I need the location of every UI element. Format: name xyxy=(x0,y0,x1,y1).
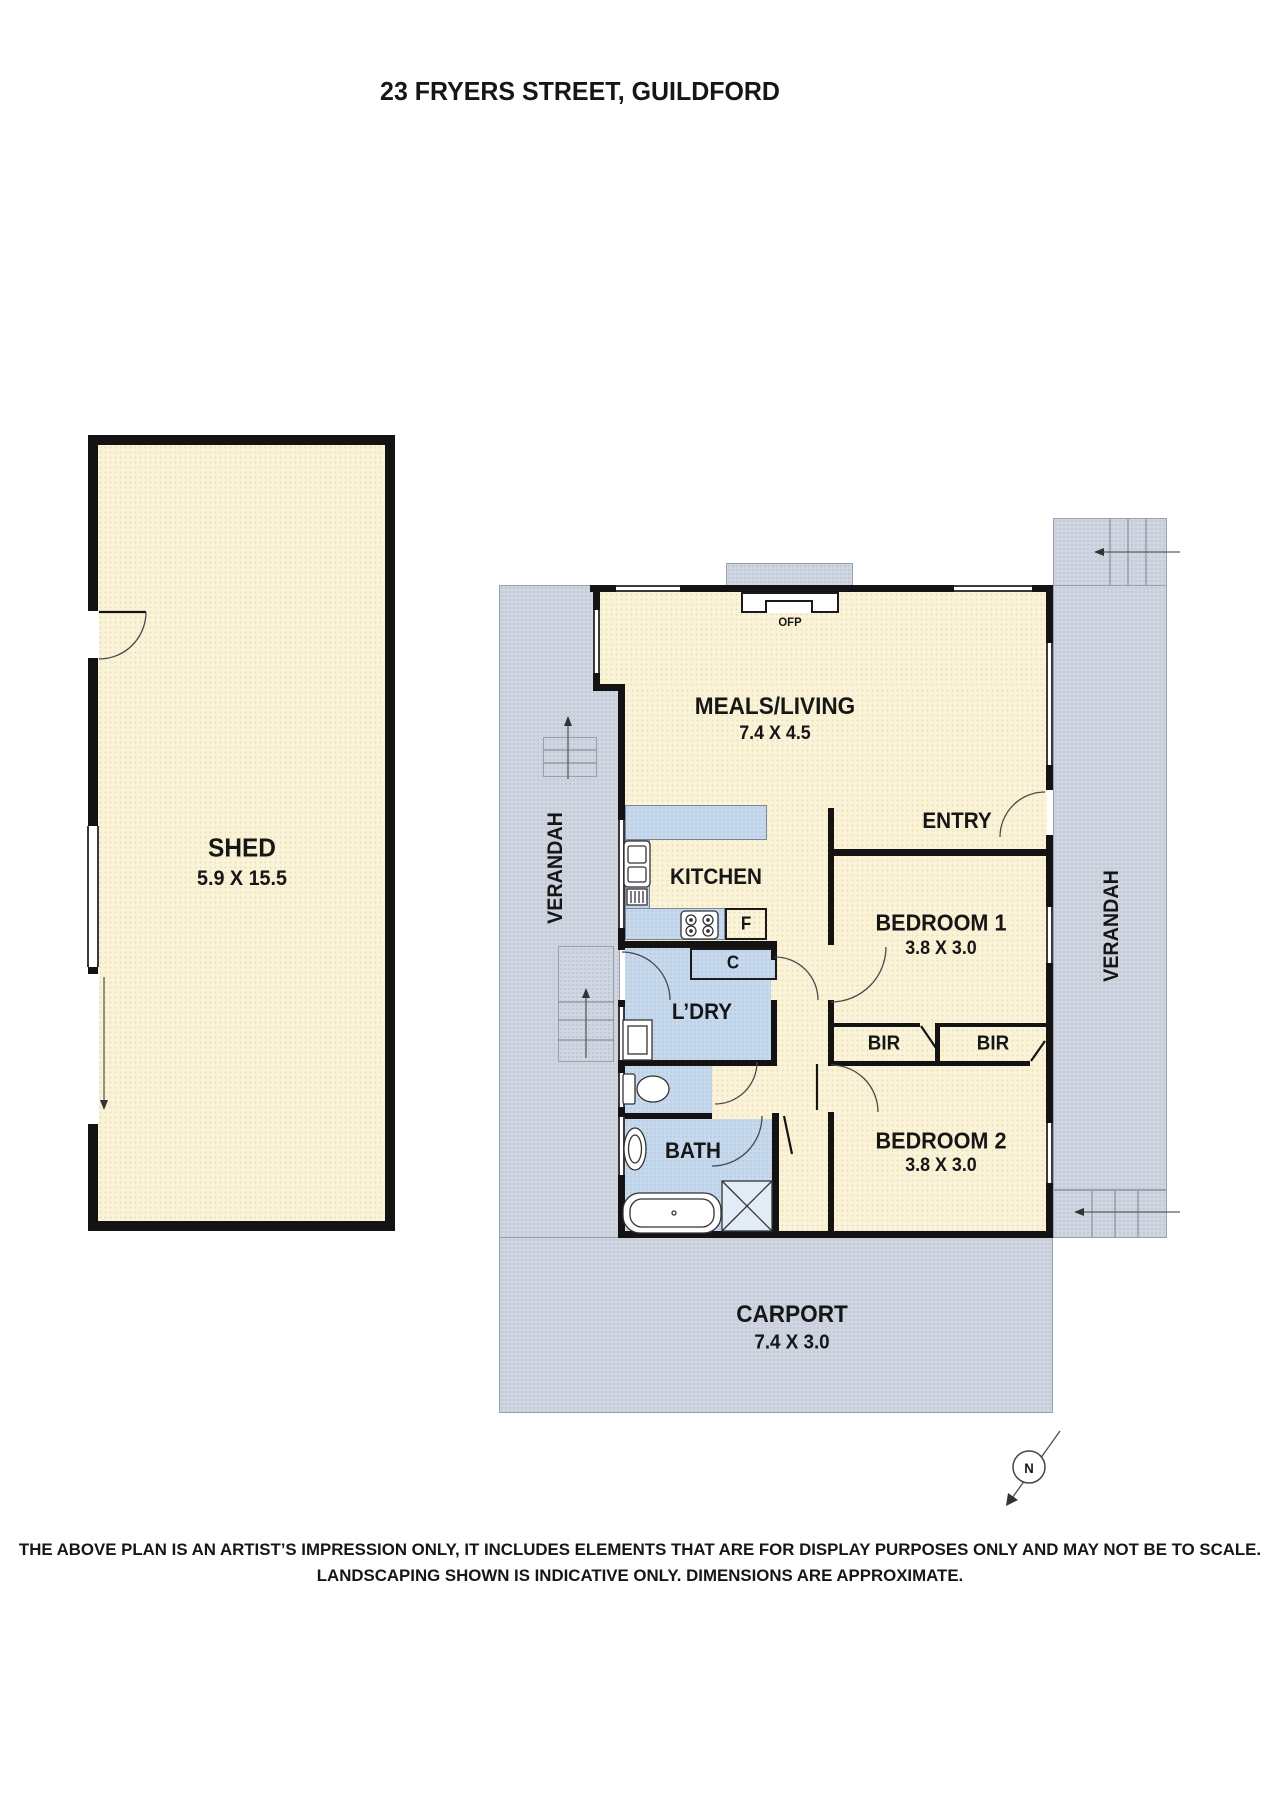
meals-living-label: MEALS/LIVING xyxy=(695,693,855,721)
bedroom2-label: BEDROOM 2 xyxy=(876,1128,1007,1155)
entry-door-arc xyxy=(1000,792,1045,837)
verandah-right-label: VERANDAH xyxy=(1100,870,1124,982)
bir-left-label: BIR xyxy=(868,1033,900,1056)
vanity-basin xyxy=(624,1128,646,1170)
compass-arrow xyxy=(1006,1493,1018,1506)
shed-dims: 5.9 X 15.5 xyxy=(197,867,287,891)
bir-left-door-tick xyxy=(921,1026,936,1048)
bedroom1-door-arc xyxy=(831,947,886,1002)
disclaimer: THE ABOVE PLAN IS AN ARTIST’S IMPRESSION… xyxy=(6,1537,1273,1589)
laundry-label: L’DRY xyxy=(672,999,732,1025)
ofp-label: OFP xyxy=(778,615,801,629)
wc-door-arc xyxy=(715,1062,757,1104)
shower xyxy=(722,1181,772,1231)
disclaimer-line1: THE ABOVE PLAN IS AN ARTIST’S IMPRESSION… xyxy=(6,1537,1273,1563)
cupboard-label: C xyxy=(727,953,739,974)
entry-label: ENTRY xyxy=(922,808,991,834)
bedroom2-door-arc xyxy=(831,1065,878,1112)
toilet xyxy=(623,1074,669,1104)
bedroom2-dims: 3.8 X 3.0 xyxy=(905,1155,976,1177)
bath-label: BATH xyxy=(665,1138,721,1164)
floorplan-page: 23 FRYERS STREET, GUILDFORD xyxy=(0,0,1280,1810)
bir-right-door-tick xyxy=(1031,1041,1045,1061)
disclaimer-line2: LANDSCAPING SHOWN IS INDICATIVE ONLY. DI… xyxy=(6,1563,1273,1589)
compass-n-label: N xyxy=(1024,1460,1034,1476)
bedroom1-label: BEDROOM 1 xyxy=(876,910,1007,937)
shed-label: SHED xyxy=(208,833,276,864)
laundry-hall-door-arc xyxy=(775,957,818,1000)
fridge-label: F xyxy=(741,914,751,935)
carport-dims: 7.4 X 3.0 xyxy=(754,1332,829,1355)
bir-right-label: BIR xyxy=(977,1033,1009,1056)
carport-label: CARPORT xyxy=(736,1301,848,1329)
bathtub xyxy=(623,1193,721,1233)
bath-door-leaf xyxy=(784,1116,792,1154)
bedroom1-dims: 3.8 X 3.0 xyxy=(905,938,976,960)
laundry-trough xyxy=(623,1020,652,1060)
laundry-door-arc xyxy=(622,952,670,1000)
shed-door-arc xyxy=(99,612,146,659)
verandah-left-label: VERANDAH xyxy=(544,812,568,924)
kitchen-label: KITCHEN xyxy=(670,864,762,890)
meals-living-dims: 7.4 X 4.5 xyxy=(739,723,810,745)
cooktop xyxy=(681,911,718,939)
kitchen-sink xyxy=(624,841,650,905)
